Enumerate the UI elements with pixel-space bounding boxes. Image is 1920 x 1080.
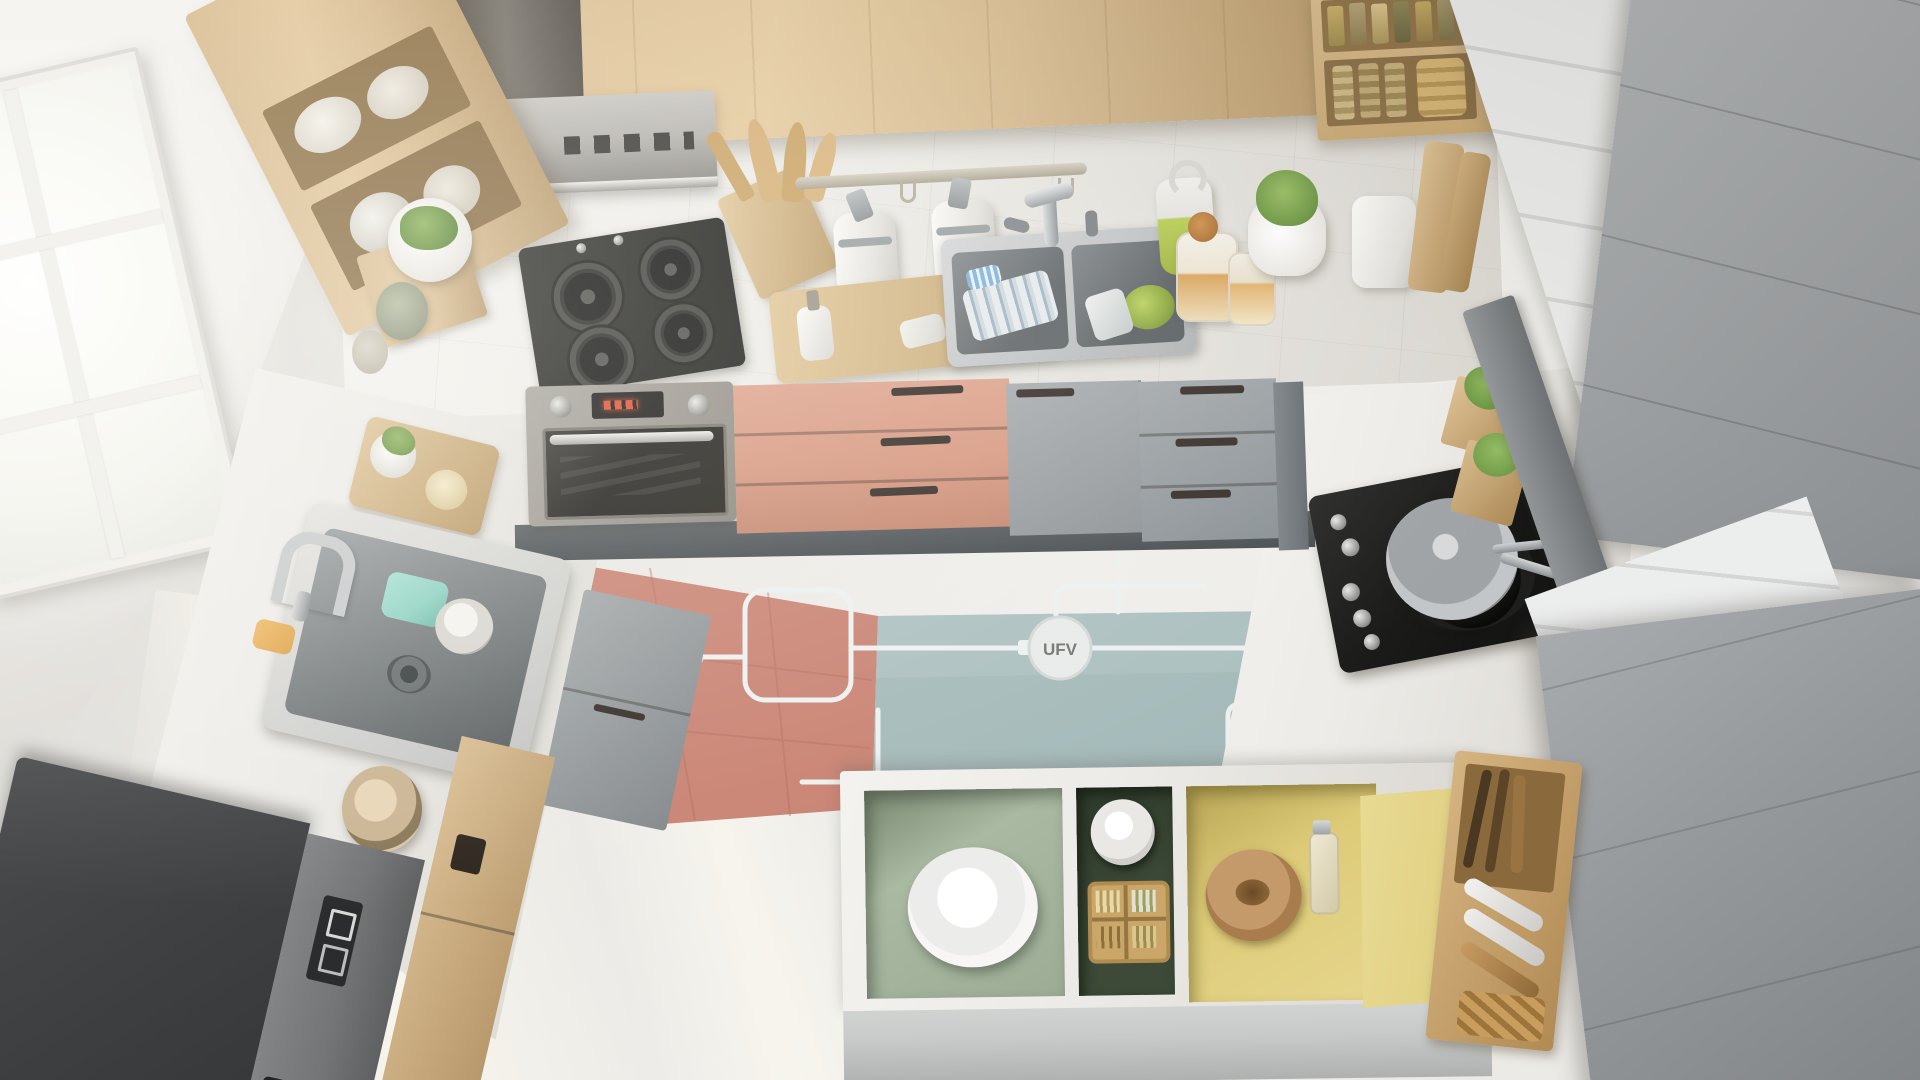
box-contents <box>1096 926 1120 948</box>
bowl <box>358 56 438 130</box>
spice-row-2 <box>1324 53 1477 127</box>
spice-row-1 <box>1321 0 1474 53</box>
panel-glyph <box>317 944 349 977</box>
oven-door <box>542 423 728 520</box>
cooktop-knob <box>613 235 624 246</box>
spice-jar <box>1371 3 1389 44</box>
hood-vent-slots <box>564 131 695 154</box>
dispenser-band <box>838 236 892 248</box>
cabinet-end-panel <box>1273 382 1309 551</box>
oven-door-handle <box>549 431 713 445</box>
tray-candle <box>421 465 471 514</box>
grain-jar <box>1384 62 1407 117</box>
grain-jar <box>1332 65 1355 120</box>
white-canister <box>1352 196 1416 288</box>
jar-scoop <box>1188 212 1218 242</box>
dispenser-pump <box>947 177 972 210</box>
island-yellow-bay <box>1186 784 1379 1003</box>
herb-pot <box>1248 196 1326 276</box>
tall-gray-cabinet-lower <box>1536 588 1920 1080</box>
oven-display-digits <box>604 400 638 410</box>
mini-pump-bottle <box>796 305 835 362</box>
dispenser-band <box>936 224 990 236</box>
hob-knob <box>1329 513 1348 532</box>
drawer-handle <box>1171 489 1231 499</box>
gas-cooktop <box>518 217 747 398</box>
hob-knob <box>1362 633 1381 652</box>
oven-display <box>591 391 664 419</box>
spice-jar <box>1415 1 1433 42</box>
oven-knob <box>687 394 710 417</box>
cooktop-knob <box>575 243 586 254</box>
kitchen-scene: UFV <box>0 0 1920 1080</box>
dinner-plate <box>907 846 1039 968</box>
drawer-seam <box>736 476 1012 486</box>
hob-knob <box>1340 582 1361 603</box>
fridge-handle-slot <box>259 1076 327 1080</box>
hob-knob <box>1352 608 1373 629</box>
rail-hook <box>900 182 916 203</box>
drawer-seam <box>1141 482 1279 489</box>
mini-pump-top <box>806 290 820 311</box>
white-storage-canister <box>1090 799 1155 866</box>
box-contents <box>1132 890 1156 912</box>
box-divider-h <box>1092 917 1166 922</box>
divided-spice-box <box>1087 881 1170 964</box>
fridge-control-panel <box>305 895 363 988</box>
salmon-drawers <box>733 378 1013 533</box>
spice-jar <box>1327 6 1345 47</box>
drawer-handle <box>870 486 938 497</box>
gray-drawer-stack <box>1138 378 1280 542</box>
drawer-handle <box>880 435 950 446</box>
gas-burner <box>636 235 705 304</box>
drawer-seam <box>1139 430 1277 437</box>
island-dark-bay <box>1076 787 1175 996</box>
cabinet-handle <box>593 704 645 722</box>
green-jar <box>376 282 428 340</box>
gas-burner <box>549 258 627 336</box>
side-sprayer <box>1085 210 1099 237</box>
potted-plant <box>388 198 472 282</box>
round-box-stack <box>1416 57 1467 117</box>
wood-cabinet-handle <box>450 833 487 875</box>
hob-knob <box>1340 537 1361 558</box>
gas-burner <box>651 300 717 366</box>
oil-bottle <box>1309 832 1340 914</box>
herb-foliage <box>1256 170 1318 226</box>
drawer-handle <box>1175 437 1237 447</box>
drawer-handle <box>1180 385 1244 395</box>
round-serving-board <box>1205 849 1302 942</box>
drawer-seam <box>734 426 1010 436</box>
spice-jar <box>1349 2 1367 45</box>
board-snacks <box>1235 879 1269 905</box>
door-handle <box>1016 388 1074 398</box>
grain-jar <box>1358 63 1381 119</box>
panel-glyph <box>325 908 357 941</box>
box-contents <box>1096 890 1120 912</box>
island-front-panel <box>843 1002 1492 1080</box>
drawer-handle <box>891 385 963 396</box>
wall-oven <box>525 381 737 526</box>
gray-cabinet-door <box>1006 380 1145 535</box>
floor-badge-label: UFV <box>1043 640 1078 659</box>
bowl <box>285 86 371 164</box>
plant-foliage <box>400 206 458 250</box>
spice-jar <box>1393 1 1411 43</box>
oven-knob <box>549 396 572 419</box>
bottle-cap <box>1313 820 1331 834</box>
cabinet-seam <box>421 911 515 936</box>
basket-weave <box>1456 990 1546 1043</box>
box-divider-v <box>1123 885 1128 959</box>
soap-bar <box>898 312 947 350</box>
box-contents <box>1132 926 1156 948</box>
oven-glass-reflection <box>560 453 701 497</box>
island-green-bay <box>864 788 1065 999</box>
small-bottle <box>352 330 388 374</box>
